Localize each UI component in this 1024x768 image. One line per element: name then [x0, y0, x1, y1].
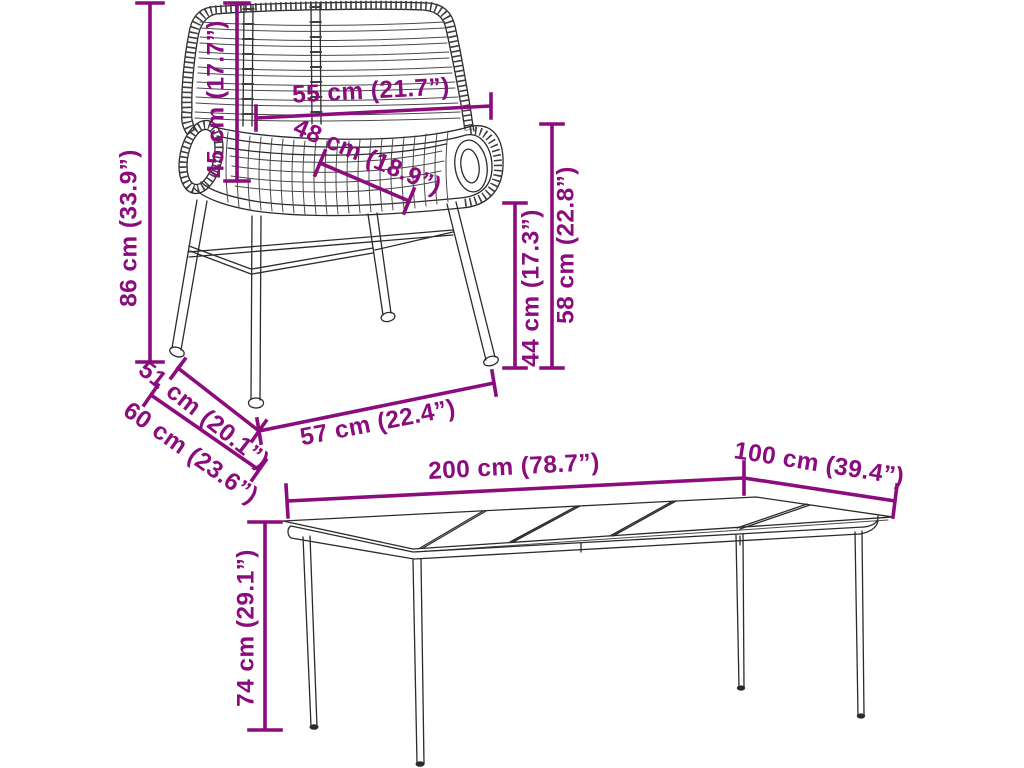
table-legs: [303, 531, 864, 764]
label-chair-seat-width: 48 cm (18.9”): [290, 114, 446, 200]
table-foot-4: [857, 713, 865, 718]
label-chair-armrest-height: 58 cm (22.8”): [552, 166, 579, 324]
furniture-dimension-diagram: 86 cm (33.9”) 45 cm (17.7”) 55 cm (21.7”…: [0, 0, 1024, 768]
table-glass-top: [283, 497, 893, 549]
label-chair-total-height: 86 cm (33.9”): [115, 149, 142, 307]
table-foot-1: [310, 724, 319, 730]
chair-foot-rear-left: [249, 398, 264, 408]
chair-spine-wraps: [248, 6, 317, 126]
table-drawing: [283, 497, 893, 767]
label-chair-backrest-width: 55 cm (21.7”): [291, 73, 450, 108]
chair-right-armcap-core: [459, 148, 482, 184]
label-table-length: 200 cm (78.7”): [427, 449, 600, 485]
chair-foot-front-left: [168, 345, 185, 359]
diagram-canvas: 86 cm (33.9”) 45 cm (17.7”) 55 cm (21.7”…: [0, 0, 1024, 768]
table-apron-left-cap: [288, 526, 297, 539]
label-chair-seat-height: 44 cm (17.3”): [517, 209, 544, 367]
table-foot-2: [416, 761, 425, 767]
table-foot-3: [737, 685, 745, 690]
chair-stretchers: [188, 230, 453, 274]
table-apron: [291, 526, 864, 559]
label-table-depth: 100 cm (39.4”): [732, 437, 906, 491]
label-chair-front-width: 57 cm (22.4”): [298, 395, 458, 452]
chair-right-armcap-inner: [452, 138, 491, 194]
label-table-height: 74 cm (29.1”): [232, 549, 259, 707]
dimension-labels: 86 cm (33.9”) 45 cm (17.7”) 55 cm (21.7”…: [115, 20, 906, 707]
label-chair-backrest-height: 45 cm (17.7”): [202, 20, 229, 178]
